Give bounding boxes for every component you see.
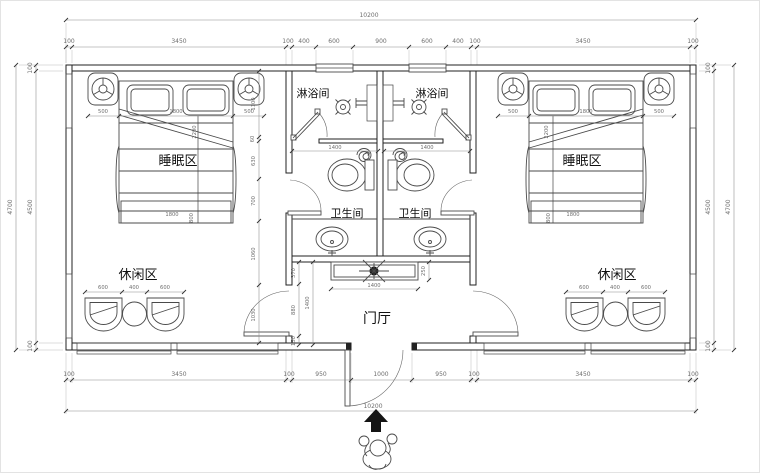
leisure-left	[85, 298, 184, 331]
armchair-icon	[566, 298, 603, 331]
entry-arrow-icon	[364, 409, 388, 432]
floor-plan-canvas: 10200 100 3450 100 400 600 900 600 400 1…	[0, 0, 760, 473]
dim-cabinet-width: 1400	[367, 283, 380, 289]
dim: 100	[63, 38, 75, 45]
dim: 100	[27, 340, 34, 352]
dim: 100	[469, 38, 481, 45]
toilet-icon	[388, 159, 434, 191]
dim: 100	[687, 371, 699, 378]
room-door-right	[473, 291, 518, 336]
dim-top-total: 10200	[359, 12, 378, 19]
floor-plan-drawing: 10200 100 3450 100 400 600 900 600 400 1…	[1, 1, 760, 474]
label-shower-left: 淋浴间	[297, 87, 330, 100]
entrance-door	[345, 350, 403, 406]
dim: 100	[705, 340, 712, 352]
person-icon	[359, 434, 397, 469]
dim-bed-foot-h: 800	[189, 213, 195, 223]
dim: 100	[63, 371, 75, 378]
dim: 600	[328, 38, 340, 45]
dim: 1800	[169, 109, 182, 115]
ceiling-lamp-icon	[234, 73, 264, 105]
label-toilet-left: 卫生间	[331, 206, 364, 220]
dim: 3450	[171, 38, 186, 45]
label-toilet-right: 卫生间	[399, 206, 432, 220]
ceiling-lamp-icon	[644, 73, 674, 105]
label-hall: 门厅	[363, 311, 391, 327]
dim: 630	[251, 156, 257, 166]
bed-left	[116, 81, 236, 223]
dim: 4500	[27, 199, 34, 214]
toilet-door-right	[441, 180, 474, 215]
extension-lines	[19, 23, 731, 414]
dim: 400	[298, 38, 310, 45]
dim: 370	[291, 268, 297, 278]
dim-cabinet-depth: 250	[421, 266, 427, 276]
sink-icon	[414, 227, 446, 256]
dim-bed-length: 2200	[544, 125, 550, 138]
door-jamb	[346, 343, 351, 350]
dim: 100	[705, 62, 712, 74]
dim: 3450	[171, 371, 186, 378]
dim: 400	[610, 285, 620, 291]
dim: 500	[508, 109, 518, 115]
dim: 600	[98, 285, 108, 291]
dim: 500	[98, 109, 108, 115]
door-jamb	[412, 343, 417, 350]
floor-drain-icon	[336, 100, 351, 115]
dim-bed-length: 2200	[192, 125, 198, 138]
entry-symbols	[359, 409, 397, 469]
label-leisure-right: 休闲区	[597, 268, 636, 283]
toilet-icon	[328, 159, 374, 191]
dim-bed-foot: 1800	[566, 212, 579, 218]
dim: 100	[283, 371, 295, 378]
armchair-icon	[147, 298, 184, 331]
dim: 950	[315, 371, 327, 378]
dim: 150	[291, 336, 297, 346]
label-sleep-right: 睡眠区	[562, 154, 601, 169]
dim: 600	[160, 285, 170, 291]
armchair-icon	[628, 298, 665, 331]
shower-fixture	[367, 85, 377, 121]
dim: 100	[27, 62, 34, 74]
dim: 600	[579, 285, 589, 291]
dim-bed-foot: 1800	[165, 212, 178, 218]
label-shower-right: 淋浴间	[416, 87, 449, 100]
dim-bed-foot-h: 800	[546, 213, 552, 223]
dim: 950	[435, 371, 447, 378]
dim-right-outer: 4700	[725, 199, 732, 214]
ceiling-lamp-icon	[88, 73, 118, 105]
dim-toilet-width: 1400	[420, 145, 433, 151]
dim: 880	[291, 305, 297, 315]
round-table-icon	[123, 302, 147, 326]
shower-fixture	[383, 85, 393, 121]
dim: 500	[244, 109, 254, 115]
shower-window-right	[409, 64, 446, 72]
dim: 600	[421, 38, 433, 45]
floor-drain-icon	[412, 100, 427, 115]
label-leisure-left: 休闲区	[118, 268, 157, 283]
dim: 1030	[251, 308, 257, 321]
round-table-icon	[604, 302, 628, 326]
shower-window-left	[316, 64, 353, 72]
shower-door-left	[291, 109, 327, 140]
dim: 700	[251, 196, 257, 206]
dim: 3450	[575, 371, 590, 378]
hall-cabinet	[331, 260, 418, 282]
bed-right	[526, 81, 646, 223]
dim: 100	[687, 38, 699, 45]
dim: 60	[250, 136, 256, 143]
armchair-icon	[85, 298, 122, 331]
shower-door-right	[435, 109, 471, 140]
dim-hall-height: 1400	[305, 296, 311, 309]
dim: 400	[452, 38, 464, 45]
dim-bottom-total: 10200	[363, 403, 382, 410]
dim: 1000	[373, 371, 388, 378]
dim: 900	[375, 38, 387, 45]
dim: 500	[654, 109, 664, 115]
dim: 1060	[251, 247, 257, 260]
dim: 100	[468, 371, 480, 378]
dim-left-outer: 4700	[7, 199, 14, 214]
ceiling-lamp-icon	[498, 73, 528, 105]
dim: 400	[129, 285, 139, 291]
sink-icon	[316, 227, 348, 256]
dim-toilet-width: 1400	[328, 145, 341, 151]
dim: 3450	[575, 38, 590, 45]
dim: 4500	[705, 199, 712, 214]
dim: 100	[282, 38, 294, 45]
dim: 600	[641, 285, 651, 291]
label-sleep-left: 睡眠区	[158, 154, 197, 169]
toilet-door-left	[288, 180, 321, 215]
leisure-right	[566, 298, 665, 331]
dim: 1800	[579, 109, 592, 115]
